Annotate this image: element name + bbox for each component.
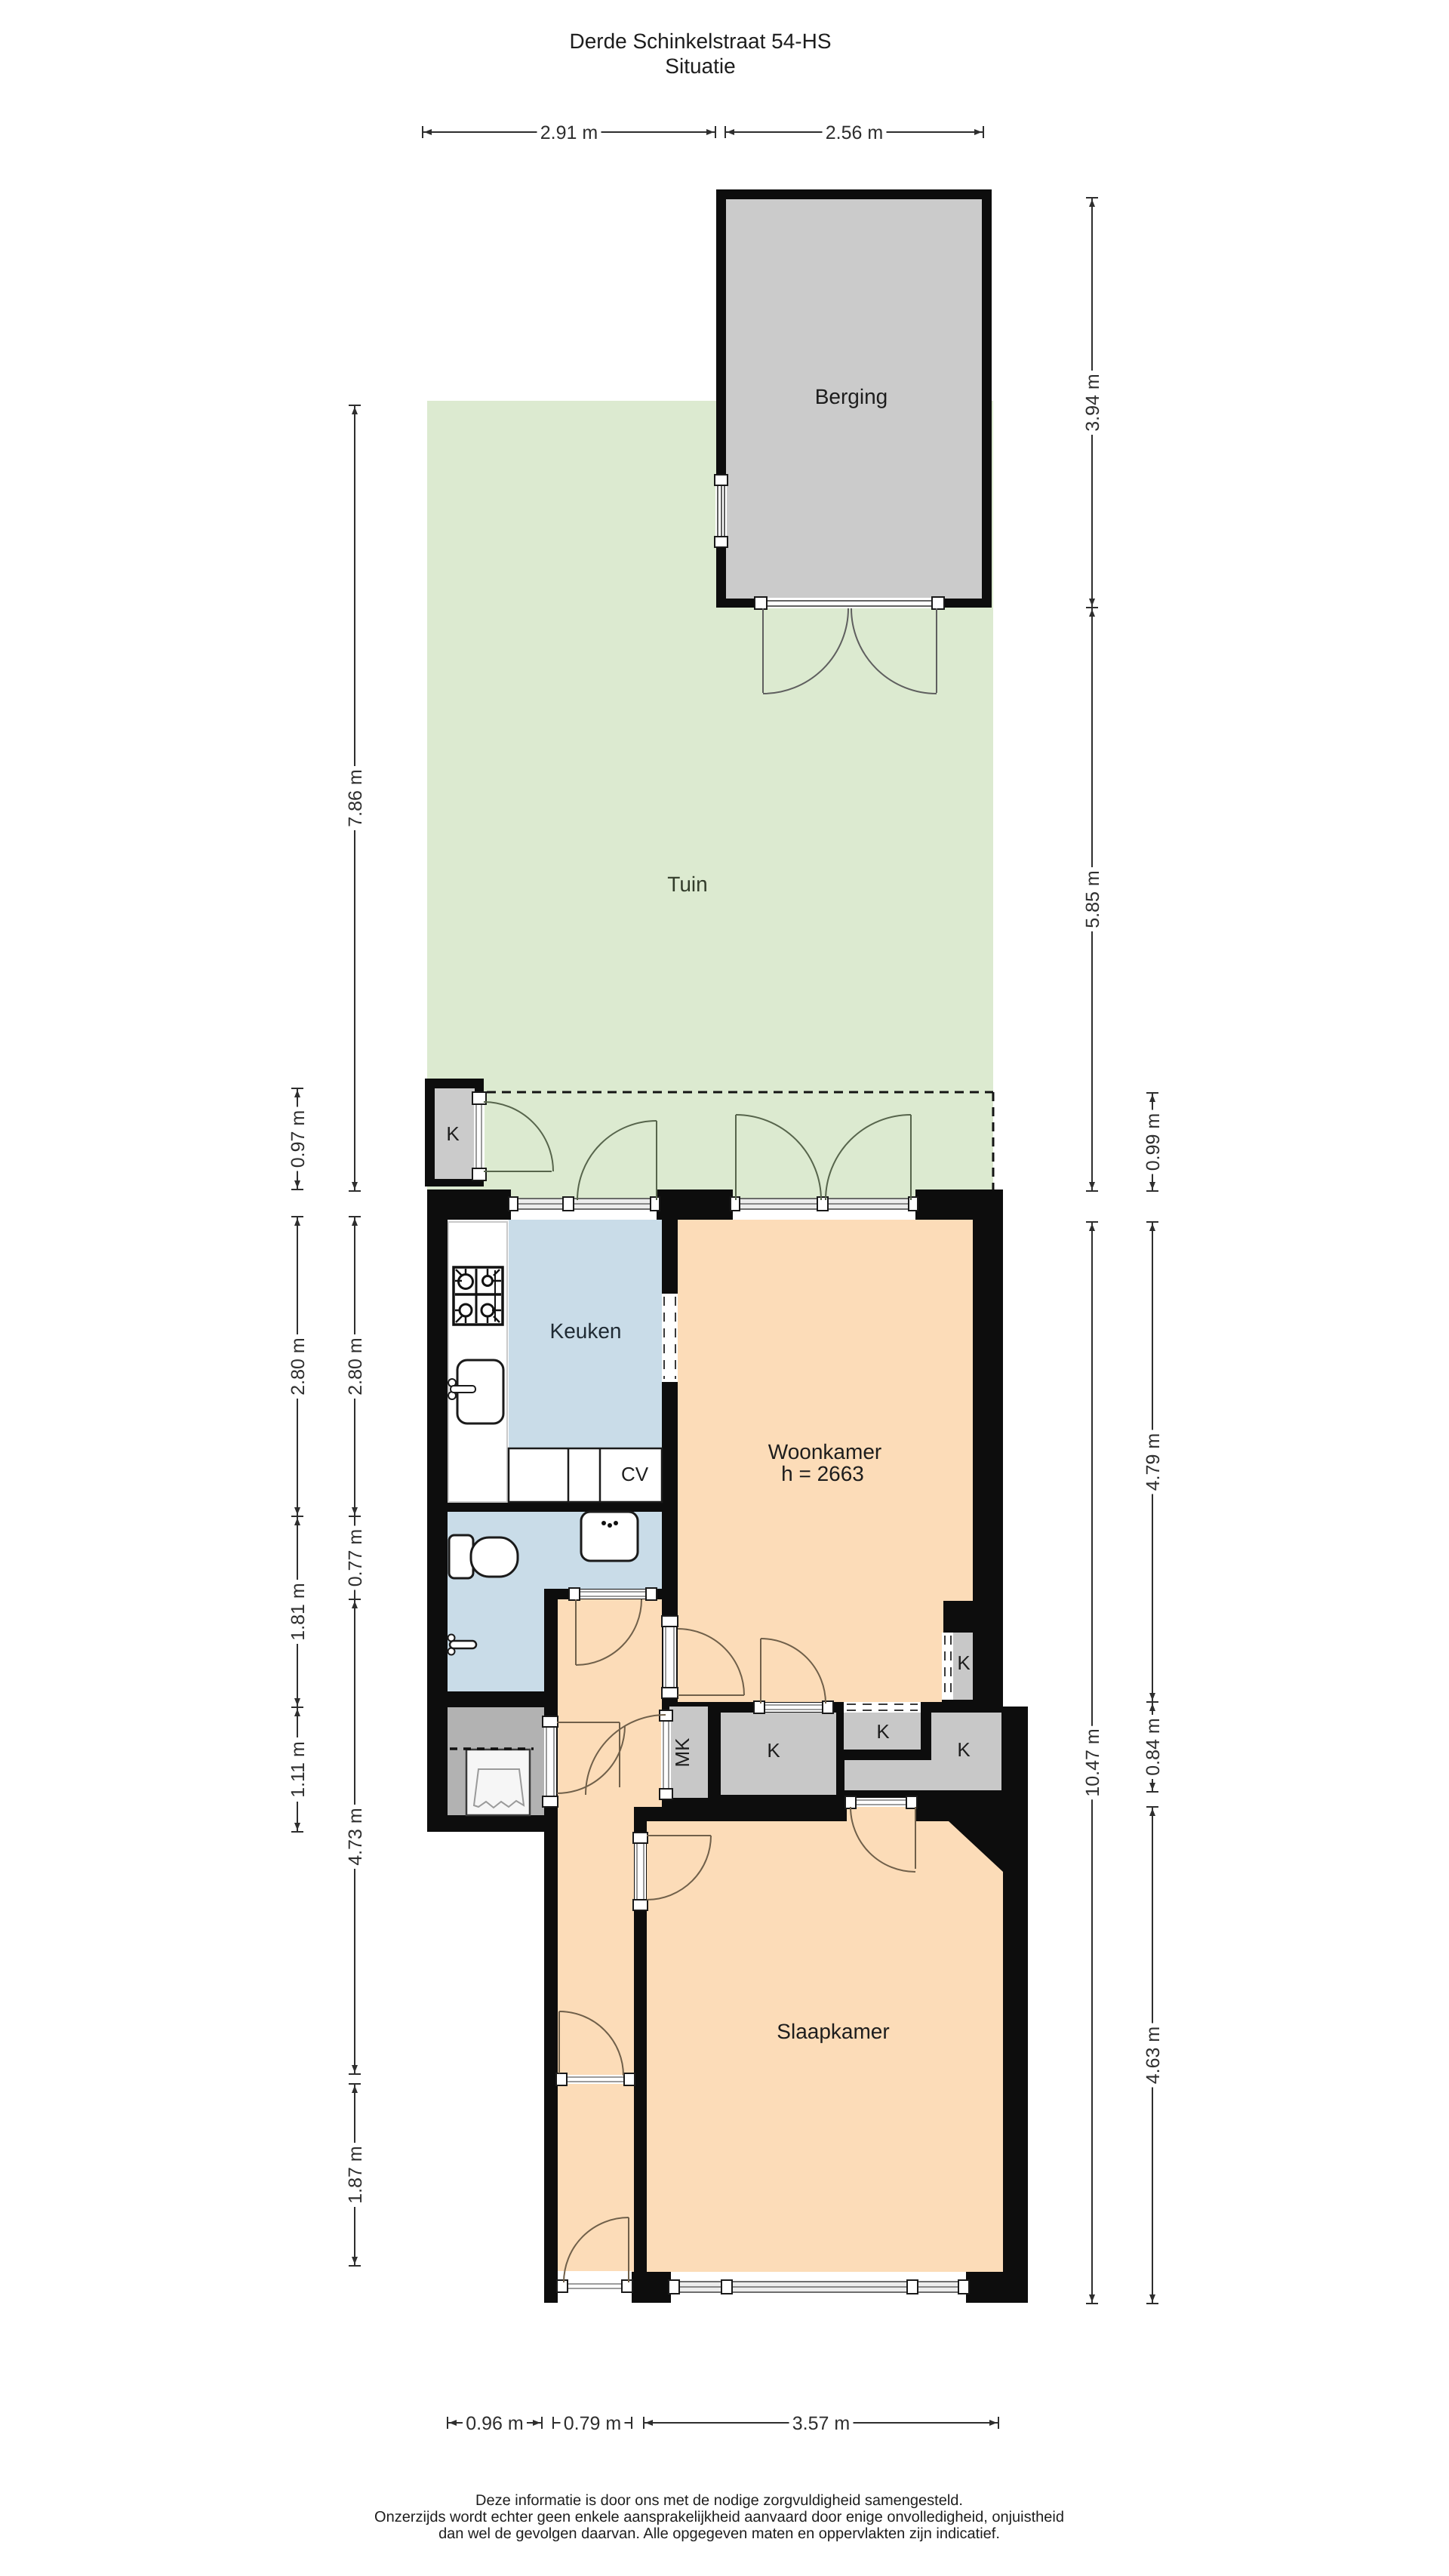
svg-text:7.86 m: 7.86 m (345, 769, 366, 826)
svg-text:CV: CV (621, 1463, 649, 1485)
svg-text:5.85 m: 5.85 m (1082, 870, 1103, 928)
svg-text:Slaapkamer: Slaapkamer (777, 2020, 889, 2043)
svg-text:4.63 m: 4.63 m (1143, 2027, 1164, 2084)
svg-text:2.80 m: 2.80 m (288, 1337, 309, 1395)
svg-text:Situatie: Situatie (665, 54, 735, 78)
svg-text:2.56 m: 2.56 m (826, 122, 883, 143)
svg-text:Deze informatie is door ons me: Deze informatie is door ons met de nodig… (475, 2492, 963, 2509)
svg-text:10.47 m: 10.47 m (1082, 1728, 1103, 1796)
svg-text:K: K (957, 1738, 971, 1761)
svg-text:3.94 m: 3.94 m (1082, 374, 1103, 431)
svg-text:0.97 m: 0.97 m (288, 1110, 309, 1168)
svg-text:Keuken: Keuken (550, 1319, 622, 1343)
svg-text:MK: MK (671, 1737, 694, 1768)
svg-text:1.11 m: 1.11 m (288, 1741, 309, 1798)
svg-text:1.87 m: 1.87 m (345, 2146, 366, 2203)
svg-text:3.57 m: 3.57 m (792, 2413, 850, 2434)
svg-text:Woonkamer: Woonkamer (768, 1440, 881, 1463)
svg-text:Onzerzijds wordt echter geen e: Onzerzijds wordt echter geen enkele aans… (374, 2509, 1064, 2525)
svg-text:0.99 m: 0.99 m (1143, 1113, 1164, 1171)
svg-text:0.79 m: 0.79 m (564, 2413, 621, 2434)
svg-text:0.77 m: 0.77 m (345, 1529, 366, 1587)
svg-text:2.91 m: 2.91 m (540, 122, 598, 143)
svg-text:0.84 m: 0.84 m (1143, 1718, 1164, 1775)
svg-text:4.79 m: 4.79 m (1143, 1433, 1164, 1491)
svg-text:Derde Schinkelstraat 54-HS: Derde Schinkelstraat 54-HS (569, 29, 831, 53)
svg-text:h = 2663: h = 2663 (781, 1462, 864, 1485)
svg-text:K: K (876, 1720, 890, 1743)
svg-text:1.81 m: 1.81 m (288, 1583, 309, 1640)
svg-text:Tuin: Tuin (667, 873, 707, 896)
svg-text:dan wel de gevolgen daarvan. A: dan wel de gevolgen daarvan. Alle opgege… (438, 2525, 1000, 2542)
svg-text:K: K (767, 1739, 780, 1762)
svg-text:0.96 m: 0.96 m (466, 2413, 523, 2434)
svg-text:K: K (446, 1122, 460, 1145)
svg-text:4.73 m: 4.73 m (345, 1808, 366, 1865)
svg-text:2.80 m: 2.80 m (345, 1337, 366, 1395)
svg-text:K: K (957, 1651, 971, 1674)
svg-text:Berging: Berging (815, 385, 888, 408)
